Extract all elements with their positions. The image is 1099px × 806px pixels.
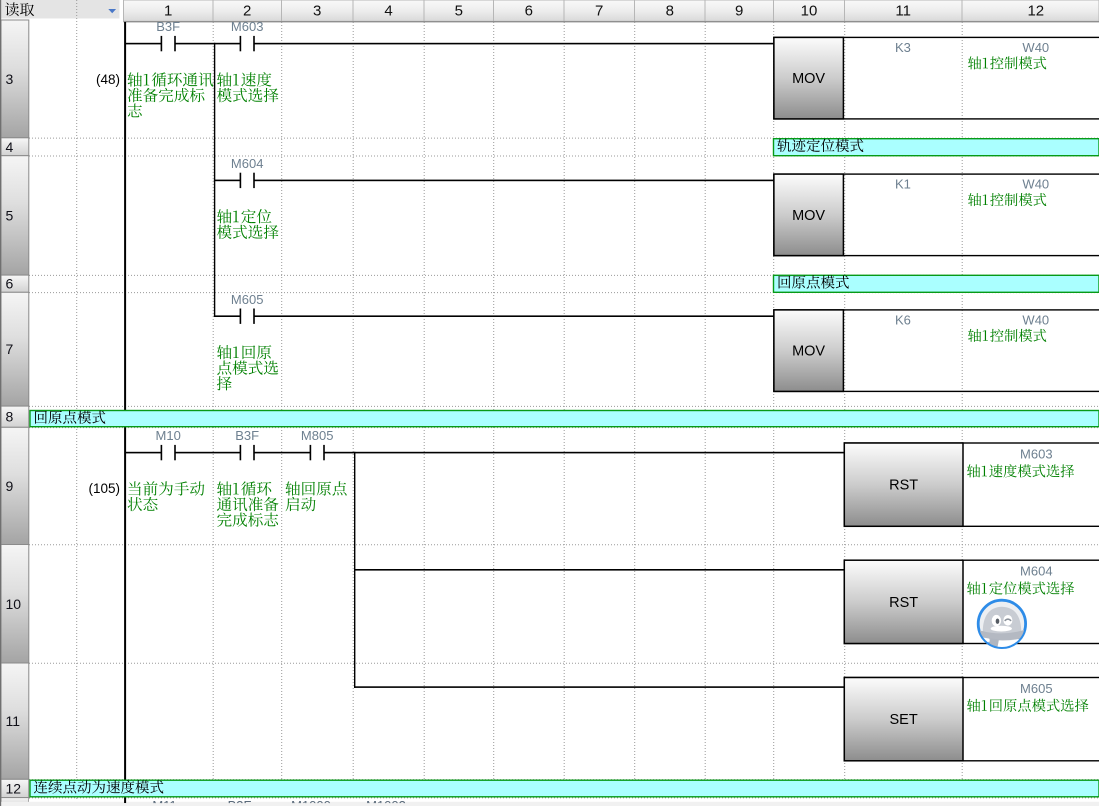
svg-text:2: 2 [243, 3, 251, 20]
svg-text:6: 6 [525, 3, 533, 20]
svg-text:9: 9 [735, 3, 743, 20]
svg-text:10: 10 [6, 596, 22, 612]
svg-text:3: 3 [313, 3, 321, 20]
svg-text:11: 11 [6, 713, 21, 729]
svg-text:M604: M604 [231, 156, 264, 171]
svg-text:4: 4 [6, 139, 14, 155]
svg-text:M805: M805 [301, 428, 334, 443]
svg-text:M604: M604 [1020, 564, 1053, 579]
svg-text:M605: M605 [1020, 681, 1053, 696]
svg-text:6: 6 [6, 276, 14, 292]
svg-text:8: 8 [666, 3, 674, 20]
svg-text:10: 10 [801, 3, 818, 20]
svg-text:RST: RST [889, 478, 918, 494]
svg-text:12: 12 [6, 781, 22, 797]
svg-text:(48): (48) [96, 72, 120, 87]
svg-text:B3F: B3F [235, 428, 259, 443]
svg-text:SET: SET [889, 712, 917, 728]
svg-text:11: 11 [895, 3, 911, 20]
svg-text:9: 9 [6, 478, 14, 494]
svg-text:12: 12 [1027, 3, 1044, 20]
svg-text:W40: W40 [1022, 40, 1049, 55]
svg-text:MOV: MOV [792, 208, 825, 224]
svg-text:M603: M603 [1020, 446, 1053, 461]
svg-text:M10: M10 [156, 428, 181, 443]
svg-text:7: 7 [595, 3, 603, 20]
svg-text:K3: K3 [895, 40, 911, 55]
svg-text:W40: W40 [1022, 177, 1049, 192]
svg-text:3: 3 [6, 71, 14, 87]
svg-text:M603: M603 [231, 19, 264, 34]
svg-text:4: 4 [384, 3, 392, 20]
svg-text:1: 1 [164, 3, 172, 20]
svg-text:M605: M605 [231, 292, 264, 307]
svg-text:K1: K1 [895, 177, 911, 192]
svg-text:5: 5 [6, 207, 14, 223]
svg-text:(105): (105) [88, 481, 120, 496]
svg-text:MOV: MOV [792, 71, 825, 87]
svg-text:B3F: B3F [156, 19, 180, 34]
svg-text:MOV: MOV [792, 344, 825, 360]
svg-text:W40: W40 [1022, 313, 1049, 328]
svg-text:RST: RST [889, 595, 918, 611]
svg-text:5: 5 [455, 3, 463, 20]
svg-text:8: 8 [6, 409, 14, 425]
svg-text:7: 7 [6, 341, 14, 357]
svg-text:K6: K6 [895, 313, 911, 328]
